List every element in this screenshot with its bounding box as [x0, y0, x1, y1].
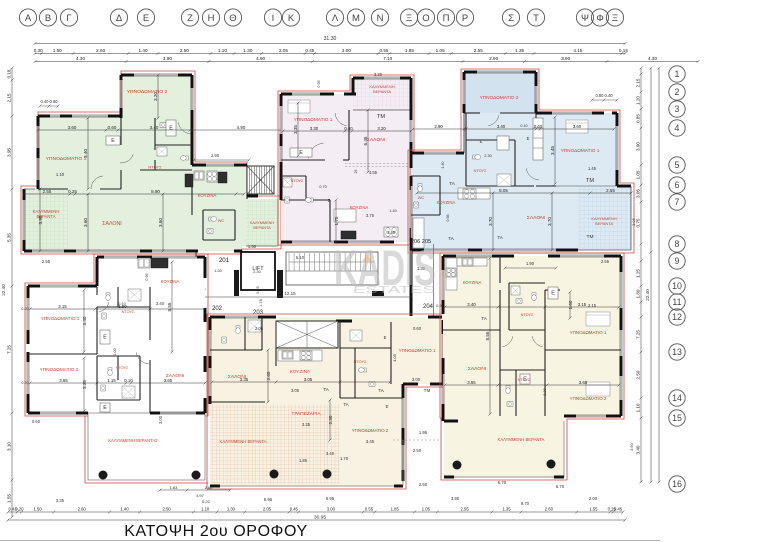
svg-text:0.75: 0.75 [636, 218, 641, 227]
svg-text:1.75: 1.75 [334, 216, 339, 225]
svg-text:4.90: 4.90 [256, 56, 265, 61]
svg-text:1.40: 1.40 [441, 161, 445, 168]
svg-text:202: 202 [212, 306, 223, 312]
svg-text:3.15: 3.15 [58, 304, 67, 309]
svg-text:ΝΤΟΥΣ: ΝΤΟΥΣ [521, 313, 534, 317]
svg-text:3.30: 3.30 [374, 72, 383, 77]
svg-text:1.50: 1.50 [34, 506, 43, 511]
svg-text:1.20: 1.20 [636, 96, 641, 105]
svg-text:3.40: 3.40 [636, 445, 641, 454]
svg-text:2.50: 2.50 [419, 482, 428, 487]
svg-text:ΚΟΥΖΙΝΑ: ΚΟΥΖΙΝΑ [463, 280, 482, 285]
svg-text:2.55: 2.55 [601, 259, 610, 264]
svg-text:3.15: 3.15 [588, 303, 597, 308]
svg-text:1.25: 1.25 [636, 269, 641, 278]
svg-text:Ο: Ο [422, 13, 429, 24]
svg-text:ΥΠΝΟΔΩΜΑΤΙΟ 1: ΥΠΝΟΔΩΜΑΤΙΟ 1 [294, 117, 333, 123]
svg-text:ΤΑ: ΤΑ [323, 387, 329, 392]
svg-text:1.55: 1.55 [589, 506, 598, 511]
svg-text:6.95: 6.95 [264, 497, 273, 502]
svg-text:0.60: 0.60 [413, 326, 422, 331]
svg-text:2.05: 2.05 [263, 506, 272, 511]
svg-text:Ε: Ε [299, 150, 303, 156]
svg-text:4.55: 4.55 [369, 170, 378, 175]
svg-text:0.60: 0.60 [108, 125, 117, 130]
svg-text:ΤΡΑΠΕΖΑΡΙΑ: ΤΡΑΠΕΖΑΡΙΑ [291, 411, 321, 417]
svg-text:1.10: 1.10 [201, 506, 210, 511]
svg-text:2.65: 2.65 [266, 371, 271, 380]
svg-text:Γ: Γ [66, 13, 71, 24]
svg-text:ΤΑ: ΤΑ [378, 388, 384, 393]
svg-text:ΥΠΝΟΔΩΜΑΤΙΟ 2: ΥΠΝΟΔΩΜΑΤΙΟ 2 [352, 428, 389, 433]
svg-text:3.45: 3.45 [550, 146, 555, 155]
svg-text:3.55: 3.55 [467, 380, 476, 385]
svg-text:30.95: 30.95 [314, 515, 326, 521]
svg-text:3.40: 3.40 [156, 301, 165, 306]
svg-text:11: 11 [672, 297, 681, 307]
svg-text:Ψ: Ψ [581, 13, 589, 24]
svg-text:2.30: 2.30 [484, 154, 491, 158]
svg-text:2.15: 2.15 [7, 93, 12, 102]
svg-text:Ι: Ι [272, 13, 275, 24]
svg-text:ΥΠΝΟΔΩΜΑΤΙΟ 1: ΥΠΝΟΔΩΜΑΤΙΟ 1 [46, 156, 87, 162]
svg-text:Ε: Ε [111, 138, 115, 144]
svg-text:1.00: 1.00 [113, 348, 117, 355]
svg-text:2.60: 2.60 [96, 48, 105, 53]
svg-text:3.25: 3.25 [82, 380, 87, 389]
svg-text:3.35: 3.35 [293, 125, 298, 134]
svg-text:14: 14 [672, 393, 682, 403]
svg-text:1.10: 1.10 [56, 172, 65, 177]
svg-text:8.05: 8.05 [499, 188, 508, 193]
svg-text:0.70: 0.70 [319, 184, 327, 189]
svg-text:ΝΤΟΥΣ: ΝΤΟΥΣ [518, 378, 531, 382]
svg-text:1.50: 1.50 [53, 48, 62, 53]
svg-text:0.10: 0.10 [520, 124, 527, 128]
svg-text:0.40 0.80: 0.40 0.80 [40, 99, 58, 104]
svg-text:1.05: 1.05 [422, 506, 431, 511]
svg-text:1.40: 1.40 [139, 48, 148, 53]
svg-text:ΥΠΝΟΔΩΜΑΤΙΟ 2: ΥΠΝΟΔΩΜΑΤΙΟ 2 [480, 95, 519, 101]
svg-text:2.60: 2.60 [78, 506, 87, 511]
svg-text:3.05: 3.05 [304, 377, 313, 382]
svg-text:1.40: 1.40 [389, 209, 396, 213]
svg-text:ΚΑΛΥΜΜΕΝΗ ΒΕΡΑΝΤΑΣ: ΚΑΛΥΜΜΕΝΗ ΒΕΡΑΝΤΑΣ [108, 438, 158, 443]
svg-text:12: 12 [672, 312, 682, 322]
svg-text:Ε: Ε [169, 126, 173, 132]
svg-text:3.95: 3.95 [451, 496, 460, 501]
svg-text:2.05: 2.05 [255, 326, 264, 331]
svg-text:ΒΕΡΑΝΤΑ: ΒΕΡΑΝΤΑ [373, 89, 391, 94]
svg-text:ΒΕΡΑΝΤΑ: ΒΕΡΑΝΤΑ [253, 226, 271, 230]
svg-text:ΝΤΟΥΣ: ΝΤΟΥΣ [116, 366, 129, 370]
svg-text:5.35: 5.35 [7, 233, 12, 242]
svg-text:1.85: 1.85 [391, 506, 400, 511]
svg-text:ΝΤΟΥΣ: ΝΤΟΥΣ [148, 165, 162, 170]
svg-text:15: 15 [672, 413, 682, 423]
svg-text:Ε: Ε [480, 139, 483, 144]
svg-text:4.97: 4.97 [196, 493, 204, 498]
svg-text:1.30: 1.30 [214, 268, 223, 273]
svg-text:Ε: Ε [384, 335, 387, 340]
svg-text:31.30: 31.30 [324, 36, 337, 42]
svg-text:2.55: 2.55 [461, 506, 470, 511]
svg-text:1.95: 1.95 [419, 430, 428, 435]
svg-text:8.55: 8.55 [485, 331, 490, 340]
svg-text:2.00: 2.00 [589, 496, 598, 501]
svg-text:1.63: 1.63 [170, 485, 179, 490]
svg-text:1.30: 1.30 [243, 48, 252, 53]
svg-text:3.40: 3.40 [83, 149, 88, 158]
svg-text:0.60: 0.60 [534, 124, 543, 129]
svg-text:Ζ: Ζ [187, 13, 193, 24]
svg-text:3.45: 3.45 [366, 439, 375, 444]
svg-text:3.70: 3.70 [547, 217, 552, 226]
svg-text:ΚΟΥΖΙΝΑ: ΚΟΥΖΙΝΑ [437, 200, 456, 205]
svg-text:3.40: 3.40 [150, 125, 159, 130]
svg-text:1.85: 1.85 [405, 48, 414, 53]
svg-text:9.70: 9.70 [521, 501, 530, 506]
svg-text:0.55: 0.55 [380, 48, 389, 53]
svg-text:6: 6 [675, 180, 680, 190]
svg-text:1.70: 1.70 [340, 456, 349, 461]
svg-text:3.40: 3.40 [82, 316, 87, 325]
svg-text:3.60: 3.60 [573, 124, 582, 129]
svg-text:2.60: 2.60 [545, 506, 554, 511]
svg-text:0.98: 0.98 [446, 215, 450, 222]
svg-text:2.60: 2.60 [205, 485, 214, 490]
svg-text:ΤΑ: ΤΑ [481, 316, 487, 321]
svg-text:1.05: 1.05 [636, 170, 641, 179]
svg-text:1.15: 1.15 [107, 378, 116, 383]
svg-text:ΥΠΝΟΔΩΜΑΤΙΟ 1: ΥΠΝΟΔΩΜΑΤΙΟ 1 [561, 148, 600, 154]
svg-text:3.00: 3.00 [342, 48, 351, 53]
svg-text:0.20: 0.20 [15, 506, 24, 511]
svg-text:2.55: 2.55 [606, 188, 615, 193]
svg-text:Ξ: Ξ [612, 13, 618, 24]
svg-text:ΣΑΛΟΝΙ: ΣΑΛΟΝΙ [367, 137, 385, 143]
svg-text:5.10: 5.10 [296, 255, 305, 260]
svg-text:0.55: 0.55 [365, 506, 374, 511]
svg-text:1.40: 1.40 [387, 230, 396, 235]
svg-text:6.70: 6.70 [498, 480, 507, 485]
svg-text:3.35: 3.35 [56, 498, 65, 503]
svg-text:Ξ: Ξ [406, 13, 412, 24]
svg-text:0.30: 0.30 [34, 48, 43, 53]
svg-text:ΤΑ: ΤΑ [343, 402, 348, 407]
svg-text:3.30: 3.30 [310, 126, 319, 131]
svg-text:Ε: Ε [103, 335, 107, 341]
svg-text:5: 5 [675, 160, 680, 170]
svg-text:Ε: Ε [386, 404, 389, 409]
svg-text:203: 203 [253, 310, 264, 316]
svg-text:ΝΤΟΥΣ: ΝΤΟΥΣ [354, 360, 367, 364]
svg-text:.25: .25 [354, 170, 358, 175]
svg-text:1.55: 1.55 [7, 494, 12, 503]
svg-text:ΤΑ: ΤΑ [448, 236, 454, 241]
svg-text:6.95: 6.95 [326, 496, 335, 501]
svg-text:0.45: 0.45 [290, 506, 299, 511]
svg-text:2.30: 2.30 [328, 415, 333, 424]
svg-text:204: 204 [423, 304, 434, 310]
svg-text:ΥΠΝΟΔΩΜΑΤΙΟ 1: ΥΠΝΟΔΩΜΑΤΙΟ 1 [41, 316, 80, 322]
svg-text:4.90: 4.90 [237, 125, 246, 130]
svg-text:3.90: 3.90 [636, 142, 641, 151]
svg-text:0.85: 0.85 [636, 114, 641, 123]
svg-text:9: 9 [675, 256, 680, 266]
svg-text:ΚΑΤΟΨΗ 2ου ΟΡΟΦΟΥ: ΚΑΤΟΨΗ 2ου ΟΡΟΦΟΥ [124, 523, 308, 540]
svg-text:1.85: 1.85 [299, 458, 308, 463]
svg-text:0.15: 0.15 [619, 48, 628, 53]
svg-text:3.35: 3.35 [240, 377, 249, 382]
svg-text:0.80 0.40: 0.80 0.40 [595, 93, 613, 98]
svg-text:3.95: 3.95 [38, 215, 43, 224]
svg-text:3.40: 3.40 [326, 451, 335, 456]
svg-text:3.90: 3.90 [561, 56, 570, 61]
svg-text:7.25: 7.25 [636, 330, 641, 339]
svg-text:ΚΟΥΖΙΝΑ: ΚΟΥΖΙΝΑ [161, 279, 180, 284]
svg-text:ΚΟΥΖΙΝΑ: ΚΟΥΖΙΝΑ [290, 369, 311, 375]
svg-text:ΤΑ: ΤΑ [497, 235, 503, 240]
svg-text:0.10: 0.10 [118, 302, 125, 306]
svg-text:Β: Β [45, 13, 51, 24]
svg-text:1.80: 1.80 [636, 289, 641, 298]
svg-text:22.40: 22.40 [1, 284, 6, 296]
svg-text:0.95: 0.95 [317, 80, 321, 87]
svg-text:1.05: 1.05 [436, 48, 445, 53]
svg-text:3.00: 3.00 [158, 415, 163, 424]
svg-text:ΤΜ: ΤΜ [377, 114, 385, 120]
svg-text:0.20: 0.20 [21, 381, 28, 385]
svg-text:ΥΠΝΟΔΩΜΑΤΙΟ 1: ΥΠΝΟΔΩΜΑΤΙΟ 1 [570, 330, 607, 335]
svg-text:6.70: 6.70 [556, 484, 565, 489]
svg-text:2.05: 2.05 [279, 48, 288, 53]
svg-text:12.15: 12.15 [284, 291, 296, 296]
svg-text:0.18: 0.18 [7, 69, 12, 78]
svg-text:3.60: 3.60 [68, 125, 77, 130]
svg-text:4.05: 4.05 [392, 353, 397, 362]
svg-text:3.75: 3.75 [366, 213, 375, 218]
svg-text:Φ: Φ [596, 13, 604, 24]
svg-text:1.10: 1.10 [218, 48, 227, 53]
svg-text:201: 201 [219, 257, 230, 264]
svg-text:3.90: 3.90 [163, 56, 172, 61]
svg-text:2.50: 2.50 [162, 506, 171, 511]
svg-text:ΣΑΛΟΝΙ: ΣΑΛΟΝΙ [102, 221, 121, 227]
svg-text:ΥΠΝΟΔΩΜΑΤΙΟ 2: ΥΠΝΟΔΩΜΑΤΙΟ 2 [40, 367, 79, 373]
svg-text:3.60: 3.60 [83, 218, 88, 227]
svg-text:4.15: 4.15 [573, 48, 582, 53]
svg-text:2.30: 2.30 [543, 388, 547, 395]
svg-text:3.20: 3.20 [377, 126, 386, 131]
svg-text:1.60: 1.60 [568, 300, 573, 309]
svg-text:ΤΜ: ΤΜ [424, 388, 431, 393]
svg-text:2.55: 2.55 [474, 48, 483, 53]
svg-text:3.35: 3.35 [302, 422, 311, 427]
svg-text:3: 3 [675, 104, 680, 114]
svg-text:3.65: 3.65 [579, 380, 588, 385]
svg-text:8.90: 8.90 [151, 189, 160, 194]
svg-text:10: 10 [672, 281, 682, 291]
svg-text:Ε: Ε [143, 13, 149, 24]
svg-text:6.20: 6.20 [202, 499, 211, 504]
svg-text:7.25: 7.25 [7, 345, 12, 354]
svg-text:8: 8 [675, 239, 680, 249]
svg-text:2.50: 2.50 [413, 448, 422, 453]
svg-text:3.95: 3.95 [7, 148, 12, 157]
svg-text:2.30: 2.30 [253, 269, 262, 274]
svg-text:22.40: 22.40 [645, 289, 651, 301]
svg-text:WC: WC [418, 196, 425, 200]
svg-text:3.15: 3.15 [578, 302, 587, 307]
svg-text:16: 16 [672, 479, 682, 489]
svg-text:1.30: 1.30 [227, 506, 236, 511]
svg-text:1.78: 1.78 [259, 299, 263, 306]
svg-text:4.30: 4.30 [648, 56, 657, 61]
svg-text:Ε: Ε [551, 291, 555, 297]
svg-text:0.45: 0.45 [614, 506, 623, 511]
svg-text:Δ: Δ [116, 13, 123, 24]
svg-text:Λ: Λ [332, 13, 339, 24]
svg-text:3.40: 3.40 [467, 302, 476, 307]
svg-text:3.05: 3.05 [291, 388, 300, 393]
svg-text:Σ: Σ [508, 13, 514, 24]
svg-text:3.00: 3.00 [412, 377, 421, 382]
svg-text:2.50: 2.50 [180, 48, 189, 53]
svg-text:2.90: 2.90 [434, 124, 443, 129]
svg-text:ΚΑΛΥΜΜΕΝΗ ΒΕΡΑΝΤΑ: ΚΑΛΥΜΜΕΝΗ ΒΕΡΑΝΤΑ [498, 437, 545, 442]
svg-text:2.90: 2.90 [489, 56, 498, 61]
svg-text:Ν: Ν [377, 13, 384, 24]
svg-text:Θ: Θ [229, 13, 236, 24]
svg-text:7: 7 [675, 197, 680, 207]
svg-text:1: 1 [675, 69, 680, 79]
svg-text:6.45: 6.45 [363, 136, 368, 145]
svg-text:ΤΜ: ΤΜ [586, 178, 594, 184]
svg-text:13: 13 [672, 347, 682, 357]
svg-text:Ε: Ε [103, 405, 107, 411]
svg-text:Ρ: Ρ [462, 13, 468, 24]
svg-text:ΚΟΥΖΙΝΑ: ΚΟΥΖΙΝΑ [350, 205, 369, 210]
svg-text:4: 4 [675, 123, 680, 133]
svg-text:ΣΑΛΟΝΙ: ΣΑΛΟΝΙ [468, 366, 486, 372]
svg-text:3.65: 3.65 [164, 378, 173, 383]
svg-text:ΝΤΟΥΣ: ΝΤΟΥΣ [122, 310, 135, 314]
svg-text:WC: WC [218, 218, 225, 223]
svg-text:Η: Η [208, 13, 215, 24]
svg-text:ΥΠΝΟΔΩΜΑΤΙΟ 2: ΥΠΝΟΔΩΜΑΤΙΟ 2 [570, 396, 607, 401]
svg-text:0.10: 0.10 [124, 378, 133, 383]
svg-text:2.55: 2.55 [43, 189, 52, 194]
svg-text:0.25: 0.25 [68, 189, 77, 194]
svg-text:8.55: 8.55 [167, 302, 172, 311]
svg-text:2: 2 [675, 87, 680, 97]
svg-text:3.00: 3.00 [327, 506, 336, 511]
svg-text:ΥΠΝΟΔΩΜΑΤΙΟ 1: ΥΠΝΟΔΩΜΑΤΙΟ 1 [399, 348, 436, 353]
svg-text:ΤΜ: ΤΜ [586, 234, 593, 240]
svg-text:2.90: 2.90 [211, 153, 220, 158]
svg-text:3.05: 3.05 [636, 189, 641, 198]
svg-text:2.55: 2.55 [42, 259, 51, 264]
svg-text:0.60: 0.60 [32, 419, 41, 424]
svg-text:1.50: 1.50 [248, 244, 257, 249]
svg-text:ΝΤΟΥΣ: ΝΤΟΥΣ [291, 179, 304, 183]
svg-text:3.20: 3.20 [153, 92, 158, 101]
svg-text:3.40: 3.40 [497, 124, 506, 129]
svg-text:0.40: 0.40 [344, 126, 353, 131]
svg-text:1.90: 1.90 [526, 261, 535, 266]
svg-text:1.10: 1.10 [636, 403, 641, 412]
svg-text:3.65: 3.65 [59, 378, 68, 383]
svg-text:Ε: Ε [527, 136, 530, 141]
svg-text:Μ: Μ [352, 13, 360, 24]
svg-text:Π: Π [443, 13, 450, 24]
svg-text:ΝΤΟΥΣ: ΝΤΟΥΣ [474, 169, 487, 173]
svg-text:ΥΠΝΟΔΩΜΑΤΙΟ 2: ΥΠΝΟΔΩΜΑΤΙΟ 2 [127, 89, 168, 95]
svg-text:3.10: 3.10 [7, 442, 12, 451]
svg-text:3.70: 3.70 [488, 217, 493, 226]
svg-text:0.25: 0.25 [256, 286, 260, 293]
svg-text:1.45: 1.45 [588, 166, 597, 171]
svg-text:1.40: 1.40 [121, 506, 130, 511]
svg-text:4.30: 4.30 [76, 56, 85, 61]
svg-text:1.35: 1.35 [502, 506, 511, 511]
svg-text:1.35: 1.35 [515, 48, 524, 53]
svg-text:Τ: Τ [533, 13, 539, 24]
svg-text:2.15: 2.15 [636, 78, 641, 87]
svg-text:0.45: 0.45 [305, 48, 314, 53]
svg-text:3.60: 3.60 [158, 218, 163, 227]
svg-text:ΚΑΛΥΜΜΕΝΗ: ΚΑΛΥΜΜΕΝΗ [250, 221, 275, 225]
svg-text:Ε: Ε [328, 198, 331, 203]
svg-text:0.95: 0.95 [145, 273, 149, 280]
svg-text:3.60: 3.60 [629, 442, 634, 451]
svg-text:ΚΑΛΥΜΜΕΝΗ ΒΕΡΑΝΤΑ: ΚΑΛΥΜΜΕΝΗ ΒΕΡΑΝΤΑ [220, 439, 267, 444]
svg-text:Κ: Κ [288, 13, 295, 24]
svg-text:ESTATES: ESTATES [353, 285, 436, 296]
svg-text:2.50: 2.50 [636, 370, 641, 379]
svg-text:ΒΕΡΑΝΤΑ: ΒΕΡΑΝΤΑ [595, 221, 613, 226]
svg-text:7.10: 7.10 [383, 56, 392, 61]
svg-text:0.20: 0.20 [21, 307, 28, 311]
svg-text:ΣΑΛΟΝΙ: ΣΑΛΟΝΙ [527, 215, 545, 221]
svg-text:Α: Α [25, 13, 32, 24]
svg-text:ΤΑ: ΤΑ [449, 181, 455, 186]
